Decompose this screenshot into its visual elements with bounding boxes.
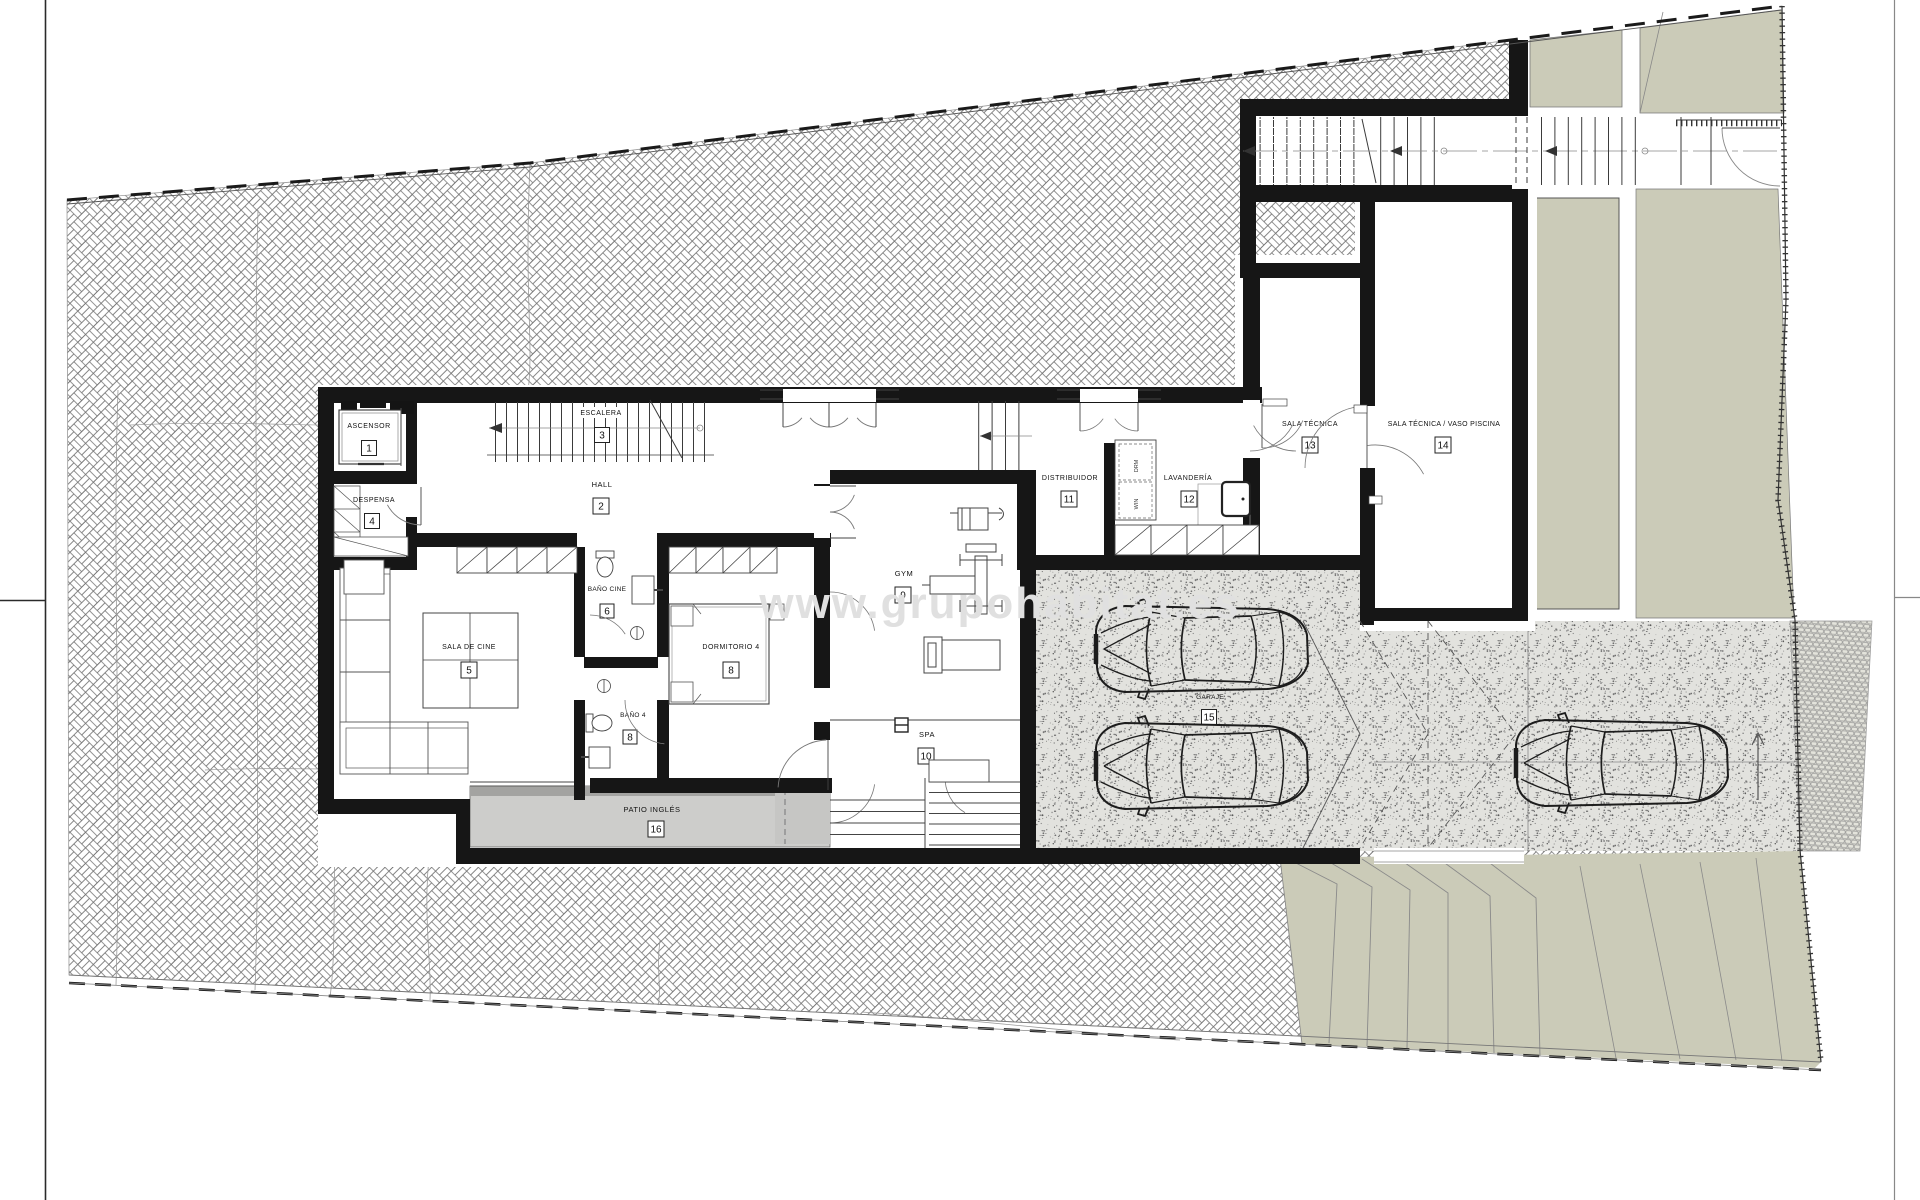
svg-text:5: 5 — [466, 666, 472, 677]
svg-text:BAÑO CINE: BAÑO CINE — [588, 584, 627, 593]
svg-text:DESPENSA: DESPENSA — [353, 497, 395, 504]
svg-text:SPA: SPA — [919, 730, 935, 739]
svg-text:DORMITORIO 4: DORMITORIO 4 — [702, 644, 759, 651]
svg-text:LAVANDERÍA: LAVANDERÍA — [1164, 473, 1212, 482]
svg-text:4: 4 — [369, 517, 375, 528]
svg-text:BAÑO 4: BAÑO 4 — [620, 710, 646, 719]
svg-text:SALA TÉCNICA: SALA TÉCNICA — [1282, 419, 1338, 428]
svg-text:8: 8 — [627, 733, 633, 744]
svg-text:ESCALERA: ESCALERA — [580, 410, 621, 417]
svg-text:HALL: HALL — [592, 480, 613, 489]
svg-text:www.grupohabitat.es: www.grupohabitat.es — [758, 579, 1240, 628]
svg-text:GYM: GYM — [895, 569, 914, 578]
svg-text:SALA TÉCNICA / VASO PISCINA: SALA TÉCNICA / VASO PISCINA — [1388, 419, 1501, 428]
svg-text:ASCENSOR: ASCENSOR — [347, 423, 390, 430]
svg-text:11: 11 — [1064, 495, 1075, 506]
svg-text:3: 3 — [599, 431, 605, 442]
svg-text:WIN: WIN — [1134, 499, 1140, 510]
svg-text:6: 6 — [604, 607, 610, 618]
svg-text:DRM: DRM — [1134, 459, 1140, 472]
svg-text:SALA DE CINE: SALA DE CINE — [442, 644, 496, 651]
svg-text:12: 12 — [1183, 495, 1195, 506]
svg-text:14: 14 — [1437, 441, 1449, 452]
svg-text:16: 16 — [650, 825, 662, 836]
svg-text:DISTRIBUIDOR: DISTRIBUIDOR — [1042, 475, 1098, 482]
svg-text:8: 8 — [728, 666, 734, 677]
svg-text:1: 1 — [366, 444, 372, 455]
svg-text:15: 15 — [1203, 713, 1215, 724]
svg-text:GARAJE: GARAJE — [1196, 694, 1224, 701]
svg-text:2: 2 — [598, 502, 604, 513]
svg-text:PATIO INGLÉS: PATIO INGLÉS — [624, 805, 681, 814]
